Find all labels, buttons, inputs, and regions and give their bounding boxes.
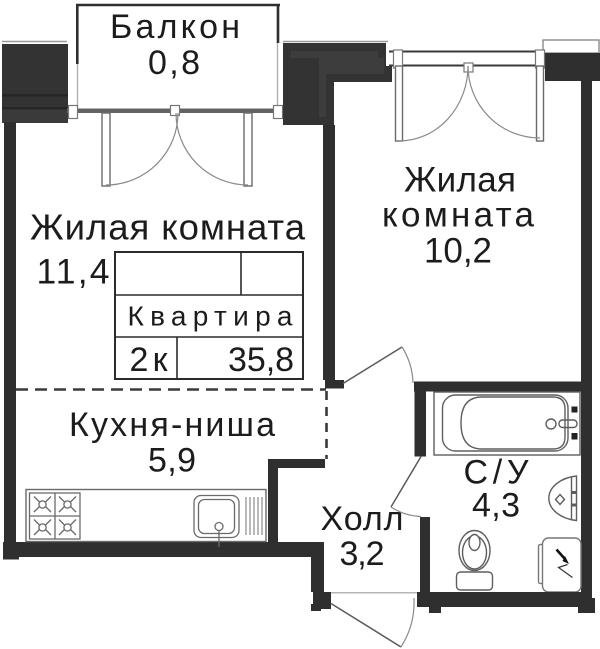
svg-text:11,4: 11,4 (37, 252, 110, 292)
svg-text:0,8: 0,8 (148, 44, 200, 82)
svg-text:Балкон: Балкон (110, 8, 240, 46)
svg-text:Кухня-ниша: Кухня-ниша (69, 406, 275, 444)
svg-text:5,9: 5,9 (148, 442, 196, 480)
svg-text:10,2: 10,2 (424, 232, 492, 271)
svg-text:4,3: 4,3 (472, 487, 520, 525)
svg-text:35,8: 35,8 (228, 341, 294, 379)
svg-text:Жилая: Жилая (404, 161, 516, 200)
svg-text:Жилая комната: Жилая комната (30, 207, 306, 248)
svg-text:3,2: 3,2 (340, 535, 385, 573)
